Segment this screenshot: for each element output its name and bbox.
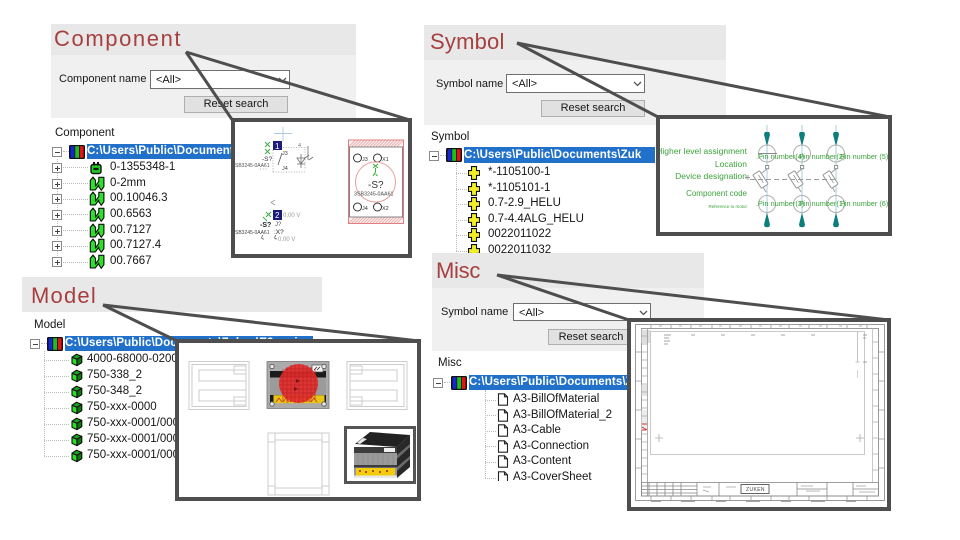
svg-text:J4: J4: [282, 166, 288, 172]
svg-text:J3: J3: [282, 151, 288, 157]
svg-text:Pin number (5): Pin number (5): [840, 152, 888, 161]
svg-text:J4: J4: [362, 206, 368, 212]
svg-text:0.00 V: 0.00 V: [278, 237, 295, 243]
svg-text:SB3245-0AA61: SB3245-0AA61: [235, 230, 270, 236]
svg-text:.Pin number(3): .Pin number(3): [756, 199, 804, 208]
svg-text:X1: X1: [382, 157, 389, 163]
svg-text:.Pin number(4): .Pin number(4): [756, 152, 804, 161]
svg-text:J?: J?: [275, 222, 282, 228]
svg-text:Higher level assignment: Higher level assignment: [660, 146, 748, 156]
svg-text:X2: X2: [382, 206, 389, 212]
svg-text:Device designation: Device designation: [675, 171, 747, 181]
svg-text:Pin number (6): Pin number (6): [840, 199, 888, 208]
svg-text:Pin number(1): Pin number(1): [799, 199, 845, 208]
svg-text:-S?: -S?: [262, 156, 273, 163]
svg-text:Location: Location: [715, 159, 747, 169]
svg-text:0.00 V: 0.00 V: [283, 213, 300, 219]
svg-text:3SB3245-0AA61: 3SB3245-0AA61: [354, 192, 394, 198]
svg-text:J3: J3: [362, 157, 368, 163]
svg-text:Pin number(2): Pin number(2): [799, 152, 845, 161]
svg-text:1: 1: [275, 142, 280, 151]
svg-text:2: 2: [275, 211, 280, 220]
svg-text:-S?: -S?: [368, 180, 384, 191]
svg-text:4: 4: [298, 143, 301, 149]
svg-text:-S?: -S?: [260, 222, 271, 229]
svg-text:Reference to motor: Reference to motor: [708, 204, 747, 209]
svg-text:Component code: Component code: [686, 189, 747, 198]
svg-text::X?: :X?: [274, 229, 284, 236]
svg-text:ZUKEN: ZUKEN: [746, 487, 765, 493]
svg-text:SB3245-0AA61: SB3245-0AA61: [235, 163, 270, 169]
